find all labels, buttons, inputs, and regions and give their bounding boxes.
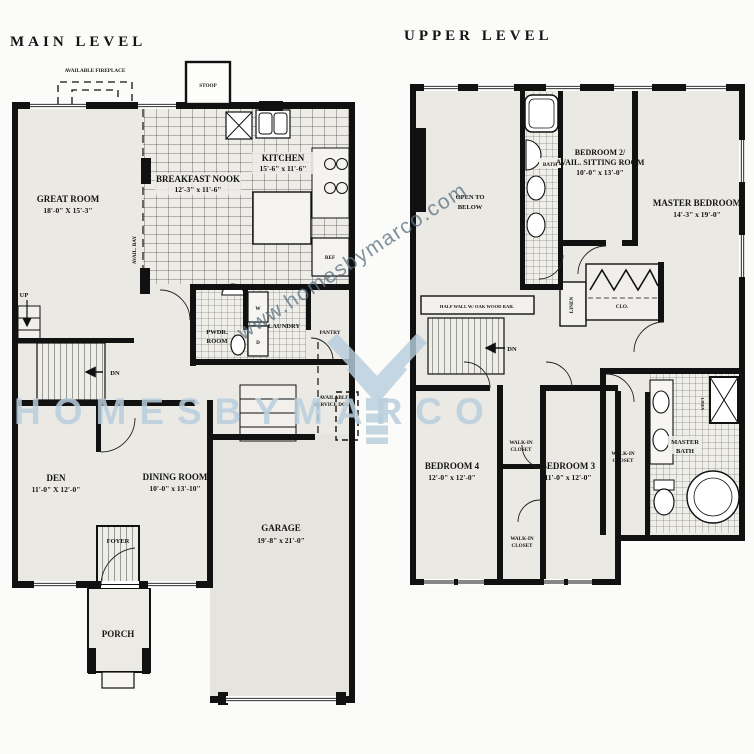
sink-basin-right xyxy=(274,113,287,134)
bedroom3-label: BEDROOM 3 xyxy=(541,461,596,471)
master-bath-label-1: MASTER xyxy=(671,439,699,446)
den-dims: 11'-0" X 12'-0" xyxy=(32,485,81,494)
bedroom4-dims: 12'-0" x 12'-0" xyxy=(428,473,476,482)
den-label: DEN xyxy=(46,473,66,483)
avail-bay-label: AVAIL. BAY xyxy=(132,236,138,265)
bedroom2-dims: 10'-0" x 13'-0" xyxy=(576,168,624,177)
main-level-plan: MAIN LEVEL AVAILABLE FIREPLACE STOOP GRE… xyxy=(10,34,358,705)
great-room-label: GREAT ROOM xyxy=(37,194,100,204)
master-wic-label-2: CLOSET xyxy=(612,458,634,464)
main-level-title: MAIN LEVEL xyxy=(10,34,146,50)
breakfast-label: BREAKFAST NOOK xyxy=(156,174,240,184)
dining-label: DINING ROOM xyxy=(143,472,208,482)
floorplan-canvas: MAIN LEVEL AVAILABLE FIREPLACE STOOP GRE… xyxy=(0,0,754,754)
kitchen-island xyxy=(253,192,311,244)
hall-closet xyxy=(586,264,662,320)
linen-label: LINEN xyxy=(569,297,575,314)
open-below-label-2: BELOW xyxy=(458,204,483,211)
upper-level-title: UPPER LEVEL xyxy=(404,28,553,44)
kitchen-dims: 15'-6" x 11'-6" xyxy=(259,164,306,173)
watermark-brand: HOMESBYMARCO xyxy=(14,391,497,432)
wic-top-label-1: WALK-IN xyxy=(509,440,533,446)
fireplace-label: AVAILABLE FIREPLACE xyxy=(65,68,126,74)
master-linen-label: LINEN xyxy=(700,398,705,411)
upper-notch xyxy=(621,541,747,587)
kitchen-label: KITCHEN xyxy=(262,153,305,163)
sink-basin-left xyxy=(259,113,272,134)
floorplan-page: MAIN LEVEL AVAILABLE FIREPLACE STOOP GRE… xyxy=(0,0,754,754)
foyer-hatch xyxy=(97,526,139,586)
foyer-label: FOYER xyxy=(107,538,130,545)
bedroom2-label-1: BEDROOM 2/ xyxy=(575,148,626,157)
master-bath-label-2: BATH xyxy=(676,448,694,455)
garage-dims: 19'-8" x 21'-0" xyxy=(257,536,305,545)
master-bedroom-label: MASTER BEDROOM xyxy=(653,198,742,208)
bedroom3-dims: 11'-0" x 12'-0" xyxy=(544,473,591,482)
garage-floor xyxy=(210,434,355,702)
garage-label: GARAGE xyxy=(261,523,301,533)
breakfast-label-group: BREAKFAST NOOK 12'-3" x 11'-6" xyxy=(155,173,241,195)
wic-top-label-2: CLOSET xyxy=(510,447,532,453)
dining-dims: 10'-0" x 13'-10" xyxy=(149,484,200,493)
clo-label: CLO. xyxy=(616,304,629,310)
dryer-label: D xyxy=(256,340,260,346)
porch-label: PORCH xyxy=(102,629,135,639)
master-bedroom-dims: 14'-3" x 19'-0" xyxy=(673,210,721,219)
dw-label: DW xyxy=(267,105,277,111)
dn-label-upper: DN xyxy=(507,346,517,353)
master-wic-label-1: WALK-IN xyxy=(611,451,635,457)
master-bath-label-group: MASTER BATH xyxy=(668,436,702,455)
wic-bottom-label-2: CLOSET xyxy=(511,543,533,549)
fireplace-dashed xyxy=(58,82,132,104)
bedroom2-label-2: AVAIL. SITTING ROOM xyxy=(556,158,645,167)
stoop-label: STOOP xyxy=(199,83,217,89)
pwdr-label-1: PWDR. xyxy=(206,329,228,336)
upper-level-plan: UPPER LEVEL OPEN TO BELOW BATH BEDROOM 2… xyxy=(404,28,747,587)
great-room-dims: 18'-0" X 15'-3" xyxy=(43,206,92,215)
wic-bottom-label-1: WALK-IN xyxy=(510,536,534,542)
up-label: UP xyxy=(20,292,29,299)
pwdr-label-2: ROOM xyxy=(207,338,228,345)
dn-label-main: DN xyxy=(110,370,120,377)
breakfast-dims: 12'-3" x 11'-6" xyxy=(174,185,221,194)
bedroom4-label: BEDROOM 4 xyxy=(425,461,480,471)
kitchen-label-group: KITCHEN 15'-6" x 11'-6" xyxy=(252,152,314,174)
half-wall-label: HALF WALL W/ OAK WOOD RAIL xyxy=(440,304,514,309)
